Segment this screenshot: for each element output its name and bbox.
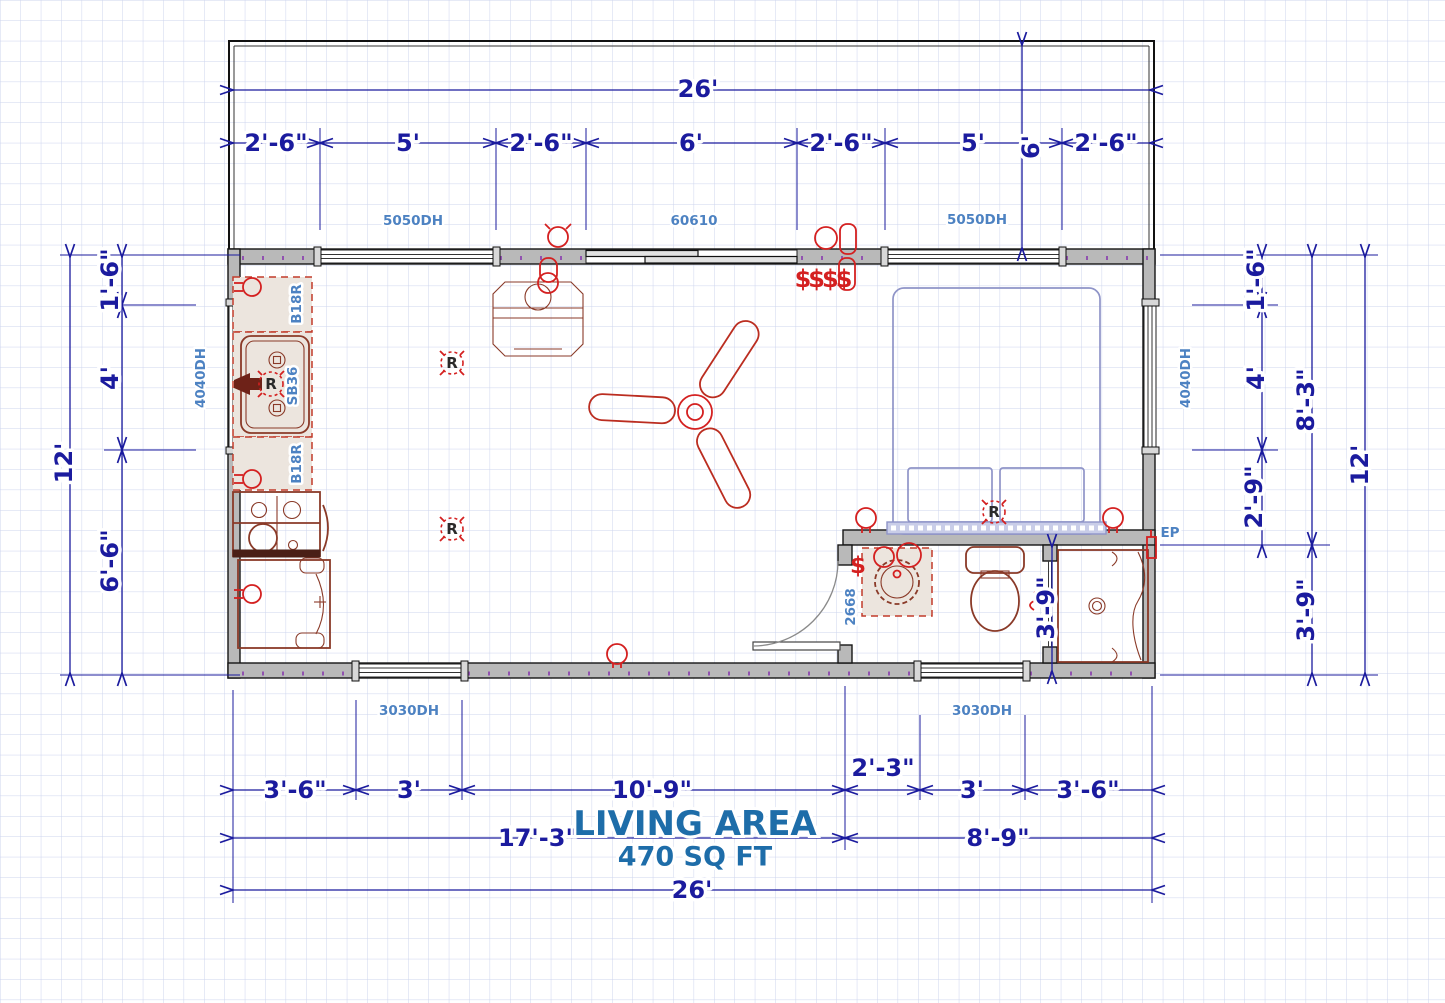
dim-top-seg-3: 2'-6"	[509, 129, 572, 157]
dim-top-seg-1: 2'-6"	[244, 129, 307, 157]
dim-bottom-right-span: 8'-9"	[966, 824, 1029, 852]
dim-left-overall: 12'	[50, 443, 78, 484]
switch-bank-symbol: $$$$	[795, 265, 852, 293]
dim-porch-depth: 6'	[1017, 135, 1045, 159]
label-window-left: 4040DH	[193, 348, 209, 408]
dim-shower-width: 3'-9"	[1032, 576, 1060, 639]
plan-title: LIVING AREA	[573, 804, 817, 844]
sliding-door-60610	[586, 250, 797, 263]
label-window-top-left: 5050DH	[383, 213, 443, 229]
window-5050dh-top-right	[881, 247, 1066, 266]
bath-switch-symbol: $	[850, 553, 866, 579]
dim-top-seg-6: 5'	[961, 129, 985, 157]
dim-top-seg-4: 6'	[679, 129, 703, 157]
label-window-top-right: 5050DH	[947, 212, 1007, 228]
plan-area: 470 SQ FT	[618, 842, 773, 873]
label-electrical-panel: EP	[1160, 525, 1179, 541]
dim-top-seg-7: 2'-6"	[1074, 129, 1137, 157]
wall-shower-stub-bottom	[1043, 647, 1057, 663]
floor-plan-page: $$$$ $ R R	[0, 0, 1445, 1003]
label-door-top: 60610	[671, 213, 718, 229]
dim-top-seg-5: 2'-6"	[809, 129, 872, 157]
svg-text:R: R	[446, 520, 458, 538]
label-bath-door: 2668	[843, 588, 859, 626]
dim-right-seg-2: 4'	[1242, 366, 1270, 390]
dim-top-seg-2: 5'	[396, 129, 420, 157]
dim-bottom-seg-1: 3'-6"	[263, 776, 326, 804]
dim-bottom-overall: 26'	[672, 876, 713, 904]
label-cabinet-bottom: B18R	[289, 444, 305, 484]
dim-bottom-left-span: 17'-3"	[498, 824, 578, 852]
svg-text:R: R	[988, 503, 1000, 521]
label-window-bottom-left: 3030DH	[379, 703, 439, 719]
dim-right-seg-3: 2'-9"	[1240, 465, 1268, 528]
dim-bottom-seg-3: 10'-9"	[612, 776, 692, 804]
wall-shower-stub-top	[1043, 545, 1057, 561]
dim-left-seg-3: 6'-6"	[96, 529, 124, 592]
svg-text:R: R	[446, 354, 458, 372]
dim-right-overall: 12'	[1346, 445, 1374, 486]
dim-right-seg-1: 1'-6"	[1242, 248, 1270, 311]
window-5050dh-top-left	[314, 247, 500, 266]
dim-bottom-seg-4: 2'-3"	[851, 754, 914, 782]
dim-right-mid-2: 3'-9"	[1292, 578, 1320, 641]
dim-bottom-seg-5: 3'	[960, 776, 984, 804]
label-window-bottom-right: 3030DH	[952, 703, 1012, 719]
label-window-right: 4040DH	[1178, 348, 1194, 408]
dim-top-overall: 26'	[678, 75, 719, 103]
window-4040dh-right	[1142, 299, 1159, 454]
bath-vanity	[862, 543, 932, 616]
dim-left-seg-2: 4'	[96, 366, 124, 390]
floor-plan-drawing: $$$$ $ R R	[0, 0, 1445, 1003]
label-cabinet-top: B18R	[289, 284, 305, 324]
dim-left-seg-1: 1'-6"	[96, 248, 124, 311]
svg-text:R: R	[265, 375, 277, 393]
label-sink-base: SB36	[285, 367, 301, 406]
dim-right-mid-1: 8'-3"	[1292, 368, 1320, 431]
dim-bottom-seg-6: 3'-6"	[1056, 776, 1119, 804]
dim-bottom-seg-2: 3'	[397, 776, 421, 804]
